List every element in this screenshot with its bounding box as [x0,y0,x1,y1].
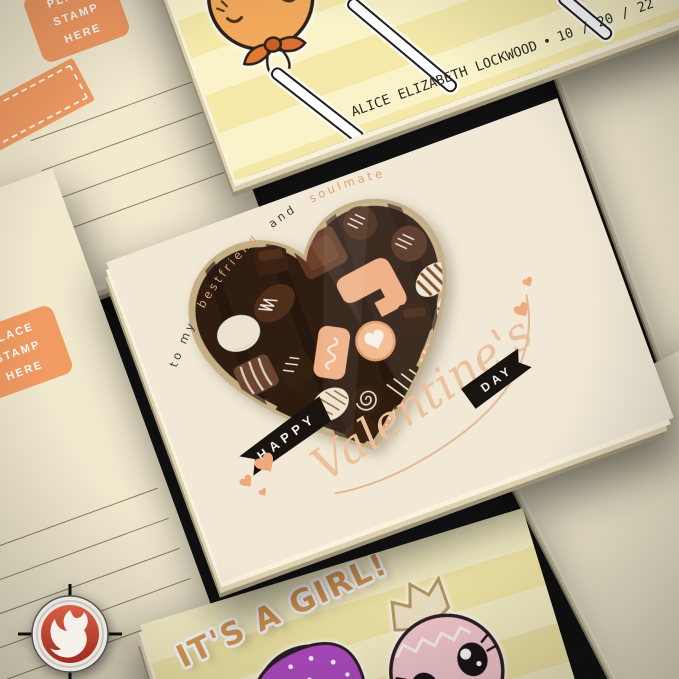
stamp-box: PLACE STAMP HERE [0,303,75,403]
brand-seal-icon [12,584,128,679]
product-photo-scene: PLACE STAMP HERE PLACE STAMP HERE [0,0,679,679]
stamp-box: PLACE STAMP HERE [21,0,131,65]
bullet-separator: • [541,33,554,51]
recipient-name: ALICE ELIZABETH LOCKWOOD [349,38,540,120]
